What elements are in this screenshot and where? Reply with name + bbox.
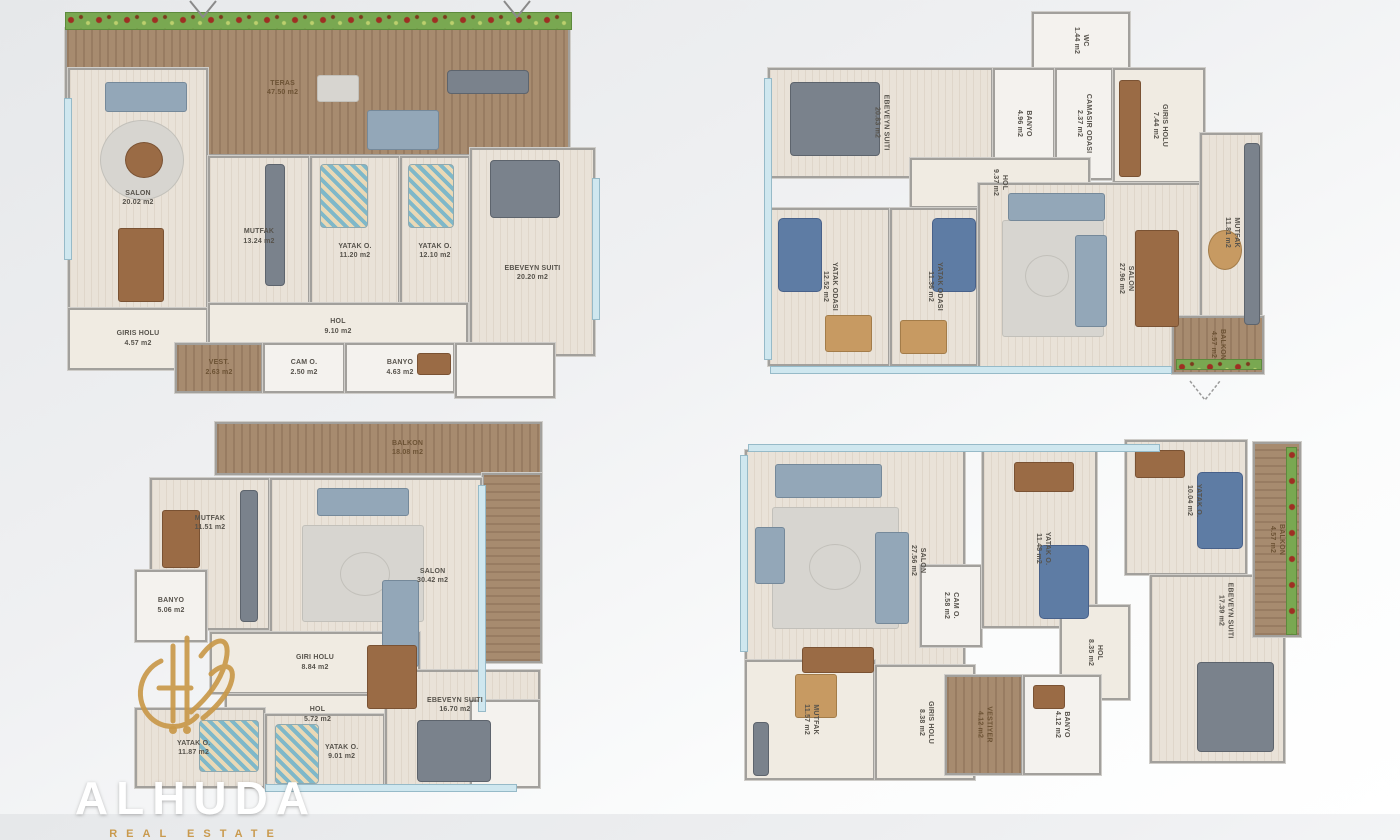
room-area: 8.35 m2: [1086, 639, 1094, 666]
room-banyo: BANYO 4.63 m2: [345, 343, 455, 393]
room-area: 4.57 m2: [124, 340, 151, 348]
room-label: SALON: [1126, 266, 1134, 292]
room-label-group: EBEVEYN SUITI 17.39 m2: [1216, 583, 1233, 639]
room-mutfak: MUTFAK 13.24 m2: [208, 156, 310, 318]
room-label-group: GIRIS HOLU 4.57 m2: [117, 330, 160, 347]
room-area: 12.52 m2: [820, 271, 828, 302]
room-area: 10.04 m2: [1185, 485, 1193, 516]
room-area: 12.10 m2: [419, 252, 450, 260]
room-label: CAM O.: [291, 359, 317, 367]
floor-plan-4: SALON 27.56 m2 CAM O. 2.58 m2 YATAK O. 1…: [730, 420, 1305, 785]
room-label-group: BANYO 5.06 m2: [157, 597, 184, 614]
room-label: MUTFAK: [1231, 218, 1239, 248]
room-label: BALKON: [1278, 524, 1286, 555]
bed: [408, 164, 454, 228]
room-area: 11.57 m2: [801, 705, 809, 736]
room-yatak-2: YATAK ODASI 11.36 m2: [890, 208, 978, 366]
coffee-table: [809, 544, 861, 590]
room-label-group: TERAS 47.50 m2: [267, 80, 298, 97]
room-balkon: BALKON 4.57 m2: [1253, 442, 1301, 637]
room-area: 4.57 m2: [1209, 331, 1217, 358]
room-label: WC: [1082, 35, 1090, 47]
room-label-group: VESTIYER 4.12 m2: [975, 707, 992, 743]
room-vest: VEST. 2.63 m2: [175, 343, 263, 393]
room-label-group: SALON 27.56 m2: [909, 545, 926, 576]
room-label-group: YATAK O. 12.10 m2: [418, 243, 451, 260]
room-label-group: SALON 20.02 m2: [122, 190, 153, 207]
sofa: [1008, 193, 1105, 221]
room-label: BALKON: [392, 440, 423, 448]
logo-title: ALHUDA: [56, 771, 336, 825]
room-label-group: BALKON 4.57 m2: [1209, 329, 1226, 360]
room-label: HOL: [1096, 645, 1104, 660]
room-label-group: BALKON 4.57 m2: [1268, 524, 1285, 555]
room-label-group: SALON 27.96 m2: [1117, 263, 1134, 294]
room-label-group: YATAK O. 10.04 m2: [1185, 484, 1202, 517]
window: [478, 485, 486, 712]
balcony-side-deck: [482, 473, 542, 663]
room-label: BALKON: [1219, 329, 1227, 360]
room-vestiyer: VESTIYER 4.12 m2: [945, 675, 1023, 775]
room-label-group: HOL 8.35 m2: [1086, 639, 1103, 666]
room-yatak-1: YATAK O. 11.48 m2: [982, 448, 1097, 628]
room-label-group: BANYO 4.12 m2: [1053, 711, 1070, 738]
room-area: 4.63 m2: [386, 369, 413, 377]
dining-table: [367, 645, 417, 709]
room-yatak-1: YATAK O. 11.20 m2: [310, 156, 400, 318]
room-label: SALON: [125, 190, 151, 198]
room-label-group: BANYO 4.63 m2: [386, 359, 413, 376]
planter-hook-icon: [502, 0, 532, 23]
room-label: HOL: [330, 318, 345, 326]
room-label-group: HOL 9.37 m2: [991, 169, 1008, 196]
room-label: SALON: [918, 548, 926, 574]
room-label-group: YATAK O. 11.20 m2: [338, 243, 371, 260]
room-area: 4.12 m2: [1053, 711, 1061, 738]
room-label: YATAK O.: [1043, 532, 1051, 565]
kitchen-counter: [240, 490, 258, 622]
room-area: 13.24 m2: [243, 238, 274, 246]
room-area: 8.38 m2: [916, 709, 924, 736]
armchair: [755, 527, 785, 584]
sofa: [317, 488, 409, 516]
flower-planter-strip: [65, 12, 572, 30]
room-area: 4.12 m2: [975, 711, 983, 738]
room-label: MUTFAK: [195, 515, 225, 523]
room-label: HOL: [1001, 175, 1009, 190]
vanity: [1033, 685, 1065, 709]
room-area: 18.08 m2: [392, 449, 423, 457]
room-balkon: BALKON 18.08 m2: [215, 422, 542, 475]
room-label-group: VEST. 2.63 m2: [205, 359, 232, 376]
room-area: 17.39 m2: [1216, 595, 1224, 626]
room-label-group: CAMASIR ODASI 2.37 m2: [1075, 94, 1092, 153]
window: [770, 366, 1172, 374]
room-label-group: CAM O. 2.58 m2: [942, 592, 959, 619]
room-cam-odasi: CAM O. 2.50 m2: [263, 343, 345, 393]
room-mutfak: MUTFAK 11.57 m2: [745, 660, 875, 780]
vanity: [417, 353, 451, 375]
room-giris-holu: GIRIS HOLU 7.44 m2: [1113, 68, 1205, 183]
kitchen-counter: [1244, 143, 1260, 325]
room-banyo: BANYO 4.12 m2: [1023, 675, 1101, 775]
room-label: YATAK ODASI: [830, 263, 838, 312]
room-area: 20.02 m2: [122, 199, 153, 207]
room-label-group: YATAK O. 11.48 m2: [1034, 532, 1051, 565]
sofa: [775, 464, 882, 498]
planter-hook-icon: [188, 0, 218, 23]
window: [748, 444, 1160, 452]
bed: [1197, 662, 1274, 752]
room-area: 20.83 m2: [872, 107, 880, 138]
room-yatak-2: YATAK O. 12.10 m2: [400, 156, 470, 318]
room-area: 30.42 m2: [417, 577, 448, 585]
desk: [900, 320, 947, 354]
room-area: 27.96 m2: [1117, 263, 1125, 294]
bed: [790, 82, 880, 156]
room-area: 11.81 m2: [1222, 218, 1230, 249]
room-label: BANYO: [1025, 111, 1033, 137]
room-cam-odasi: CAM O. 2.58 m2: [920, 565, 982, 647]
room-label: YATAK O.: [1194, 484, 1202, 517]
room-label: EBEVEYN SUITI: [427, 697, 483, 705]
window: [64, 98, 72, 260]
room-label-group: YATAK ODASI 11.36 m2: [925, 263, 942, 312]
room-area: 5.06 m2: [157, 607, 184, 615]
room-label: GIRIS HOLU: [1160, 104, 1168, 147]
alhuda-logo: ALHUDA REAL ESTATE: [56, 626, 336, 840]
dining-table: [1135, 230, 1179, 327]
room-label-group: GIRIS HOLU 7.44 m2: [1150, 104, 1167, 147]
room-area: 11.51 m2: [195, 524, 226, 532]
room-label-group: MUTFAK 11.57 m2: [801, 705, 818, 736]
room-label-group: EBEVEYN SUITI 20.20 m2: [505, 265, 561, 282]
room-label-group: MUTFAK 13.24 m2: [243, 228, 274, 245]
room-label: BANYO: [1063, 712, 1071, 738]
room-area: 2.63 m2: [205, 369, 232, 377]
room-label: YATAK O.: [418, 243, 451, 251]
floor-plan-2: WC 1.44 m2 EBEVEYN SUITI 20.83 m2 BANYO …: [760, 8, 1265, 408]
sofa: [367, 110, 439, 150]
room-label: CAMASIR ODASI: [1085, 94, 1093, 153]
section-marker: [1188, 380, 1222, 407]
room-label: EBEVEYN SUITI: [505, 265, 561, 273]
room-yatak-2: YATAK O. 10.04 m2: [1125, 440, 1247, 575]
logo-subtitle: REAL ESTATE: [56, 828, 336, 840]
room-label-group: GIRIS HOLU 8.38 m2: [916, 701, 933, 744]
room-area: 7.44 m2: [1150, 112, 1158, 139]
bed: [417, 720, 491, 782]
room-ebeveyn: EBEVEYN SUITI 20.20 m2: [470, 148, 595, 356]
kitchen-counter: [753, 722, 769, 776]
bed: [1197, 472, 1243, 549]
room-label-group: CAM O. 2.50 m2: [290, 359, 317, 376]
window: [592, 178, 600, 320]
room-label: VESTIYER: [984, 707, 992, 743]
room-mutfak: MUTFAK 11.81 m2: [1200, 133, 1262, 333]
room-label-group: HOL 9.10 m2: [324, 318, 351, 335]
room-label: BANYO: [387, 359, 413, 367]
coffee-table: [125, 142, 163, 178]
room-label-group: EBEVEYN SUITI 20.83 m2: [872, 95, 889, 151]
room-area: 47.50 m2: [267, 89, 298, 97]
room-label: SALON: [420, 568, 446, 576]
room-area: 2.50 m2: [290, 369, 317, 377]
room-label: YATAK ODASI: [935, 263, 943, 312]
bed: [490, 160, 560, 218]
room-label: EBEVEYN SUITI: [1225, 583, 1233, 639]
room-label-group: MUTFAK 11.81 m2: [1222, 218, 1239, 249]
room-label-group: YATAK ODASI 12.52 m2: [820, 263, 837, 312]
room-label-group: SALON 30.42 m2: [417, 568, 448, 585]
room-area: 11.48 m2: [1034, 533, 1042, 564]
room-area: 11.36 m2: [925, 272, 933, 303]
room-label-group: BALKON 18.08 m2: [392, 440, 423, 457]
room-yatak-1: YATAK ODASI 12.52 m2: [768, 208, 890, 366]
room-area: 11.20 m2: [340, 252, 371, 260]
room-label: VEST.: [209, 359, 229, 367]
room-area: 9.10 m2: [324, 328, 351, 336]
bed: [778, 218, 822, 292]
sofa: [1075, 235, 1107, 327]
alhuda-emblem-icon: [121, 626, 271, 766]
window: [740, 455, 748, 652]
room-label-group: MUTFAK 11.51 m2: [195, 515, 226, 532]
room-label: GIRIS HOLU: [117, 330, 160, 338]
room-label: BANYO: [158, 597, 184, 605]
dining-table: [118, 228, 164, 302]
sofa: [875, 532, 909, 624]
floor-plan-1: TERAS 47.50 m2 SALON 20.02 m2 MUTFAK 13.…: [60, 8, 600, 400]
room-label: EBEVEYN SUITI: [881, 95, 889, 151]
room-salon: SALON 20.02 m2: [68, 68, 208, 318]
room-area: 9.37 m2: [991, 169, 999, 196]
room-area: 2.37 m2: [1075, 110, 1083, 137]
desk: [825, 315, 872, 352]
room-ensuite-bath: [455, 343, 555, 398]
room-label: CAM O.: [952, 593, 960, 619]
room-label: TERAS: [270, 80, 295, 88]
room-label: MUTFAK: [244, 228, 274, 236]
room-area: 16.70 m2: [439, 706, 470, 714]
sofa: [105, 82, 187, 112]
room-label: YATAK O.: [338, 243, 371, 251]
outdoor-table: [317, 75, 359, 102]
bed: [320, 164, 368, 228]
dining-table: [1014, 462, 1074, 492]
room-area: 20.20 m2: [517, 274, 548, 282]
room-area: 1.44 m2: [1072, 27, 1080, 54]
room-label: GIRIS HOLU: [926, 701, 934, 744]
desk: [1135, 450, 1185, 478]
wardrobe: [1119, 80, 1141, 177]
flower-planter-strip: [1176, 359, 1262, 370]
room-label-group: EBEVEYN SUITI 16.70 m2: [427, 697, 483, 714]
room-area: 4.57 m2: [1268, 526, 1276, 553]
flower-planter-strip: [1286, 447, 1297, 635]
tv-console: [802, 647, 874, 673]
room-area: 27.56 m2: [909, 545, 917, 576]
room-label-group: BANYO 4.96 m2: [1015, 110, 1032, 137]
room-label-group: WC 1.44 m2: [1072, 27, 1089, 54]
kitchen-counter: [265, 164, 285, 286]
room-area: 2.58 m2: [942, 592, 950, 619]
room-wc: WC 1.44 m2: [1032, 12, 1130, 70]
bbq-counter: [447, 70, 529, 94]
coffee-table: [1025, 255, 1069, 297]
room-area: 4.96 m2: [1015, 110, 1023, 137]
room-salon: SALON 27.96 m2: [978, 183, 1205, 368]
room-label: MUTFAK: [810, 705, 818, 735]
window: [764, 78, 772, 360]
